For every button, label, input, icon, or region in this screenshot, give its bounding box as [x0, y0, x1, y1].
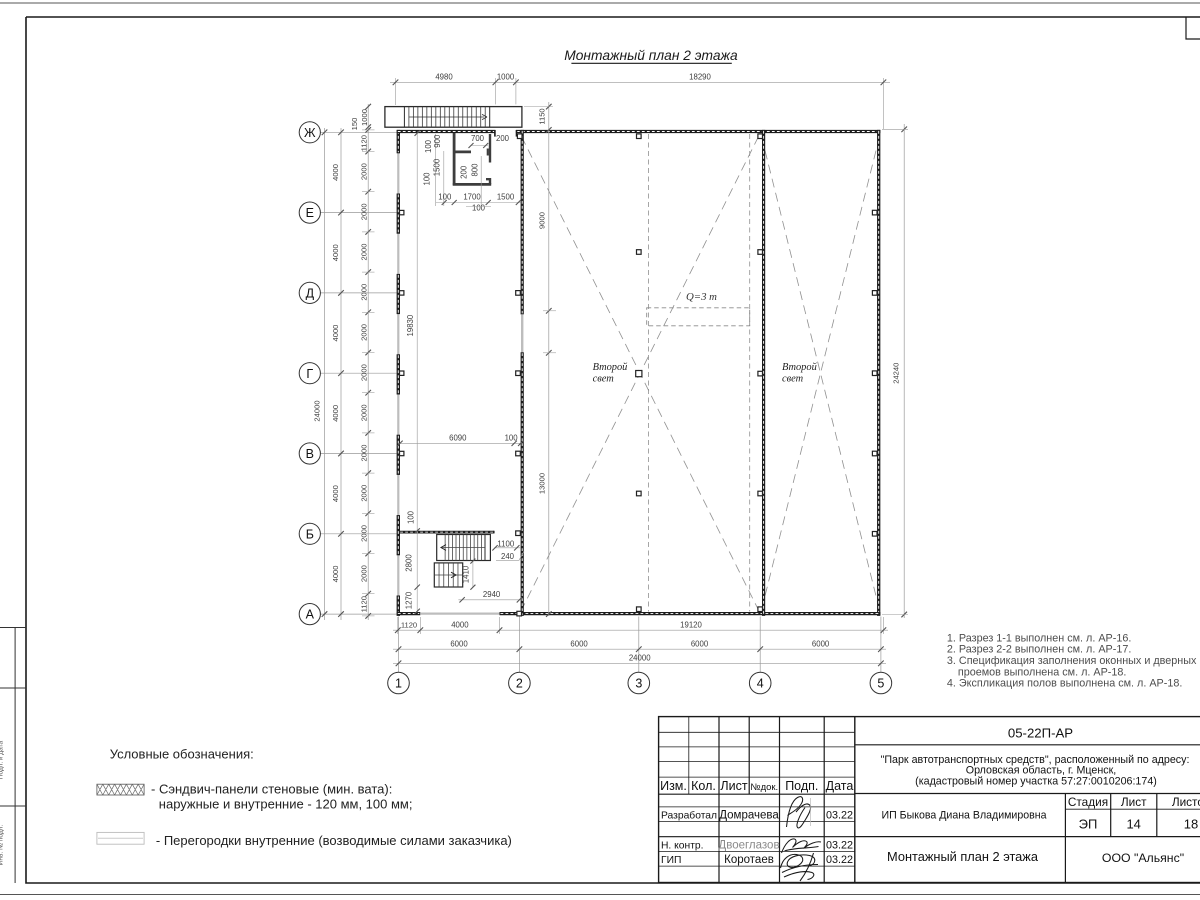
svg-text:24240: 24240 — [892, 363, 901, 384]
svg-text:4: 4 — [757, 677, 764, 691]
svg-text:13000: 13000 — [538, 473, 547, 494]
svg-text:Лист: Лист — [1121, 795, 1147, 809]
svg-text:1. Разрез 1-1 выполнен см. л.: 1. Разрез 1-1 выполнен см. л. АР-16. — [947, 632, 1131, 644]
svg-text:1000: 1000 — [497, 72, 515, 81]
svg-text:Изм.: Изм. — [660, 779, 687, 793]
svg-text:2000: 2000 — [359, 244, 368, 261]
svg-text:В: В — [306, 447, 314, 461]
svg-text:Условные обозначения:: Условные обозначения: — [110, 747, 254, 762]
svg-text:100: 100 — [422, 172, 431, 186]
svg-text:Коротаев: Коротаев — [724, 854, 774, 866]
svg-text:1120: 1120 — [401, 620, 417, 629]
svg-text:19830: 19830 — [406, 314, 415, 336]
svg-text:800: 800 — [471, 163, 480, 177]
svg-text:(кадастровый номер участка 57:: (кадастровый номер участка 57:27:0010206… — [915, 775, 1157, 787]
svg-text:4000: 4000 — [331, 244, 340, 261]
svg-text:100: 100 — [505, 433, 519, 442]
svg-text:6000: 6000 — [691, 639, 709, 648]
svg-text:Кол.: Кол. — [691, 779, 716, 793]
svg-text:2000: 2000 — [359, 404, 368, 421]
svg-text:Второй: Второй — [782, 362, 818, 373]
svg-text:Монтажный план 2 этажа: Монтажный план 2 этажа — [564, 48, 738, 63]
svg-text:100: 100 — [424, 139, 433, 153]
svg-text:Б: Б — [306, 527, 314, 541]
svg-text:2800: 2800 — [405, 554, 414, 572]
svg-text:ГИП: ГИП — [661, 855, 681, 866]
svg-text:- Перегородки внутренние (возв: - Перегородки внутренние (возводимые сил… — [156, 833, 512, 848]
svg-text:№док.: №док. — [750, 782, 778, 793]
svg-text:1270: 1270 — [405, 591, 414, 609]
svg-text:2: 2 — [516, 677, 523, 691]
svg-text:Е: Е — [306, 206, 314, 220]
svg-text:Q=3 т: Q=3 т — [686, 291, 717, 303]
svg-text:6000: 6000 — [450, 639, 468, 648]
svg-text:100: 100 — [472, 204, 486, 213]
svg-text:1000: 1000 — [360, 109, 369, 126]
svg-text:4000: 4000 — [331, 164, 340, 181]
svg-text:Ж: Ж — [304, 126, 316, 140]
svg-text:19120: 19120 — [680, 620, 702, 629]
svg-text:24000: 24000 — [629, 654, 651, 663]
svg-text:- Сэндвич-панели стеновые (мин: - Сэндвич-панели стеновые (мин. вата): — [151, 782, 392, 797]
svg-text:2000: 2000 — [359, 525, 368, 542]
svg-text:4000: 4000 — [451, 620, 469, 629]
svg-text:3. Спецификация заполнения око: 3. Спецификация заполнения оконных и две… — [947, 655, 1197, 667]
svg-text:18: 18 — [1184, 817, 1198, 832]
svg-text:1410: 1410 — [461, 565, 470, 583]
svg-text:700: 700 — [471, 134, 485, 143]
svg-text:ООО "Альянс": ООО "Альянс" — [1102, 851, 1184, 865]
svg-text:2000: 2000 — [359, 364, 368, 381]
svg-text:6090: 6090 — [449, 433, 467, 442]
svg-text:4000: 4000 — [331, 405, 340, 422]
svg-text:Двоеглазов: Двоеглазов — [718, 840, 779, 852]
svg-text:18290: 18290 — [689, 72, 711, 81]
svg-text:100: 100 — [407, 510, 416, 524]
svg-text:Разработал: Разработал — [661, 810, 717, 822]
svg-text:4000: 4000 — [331, 565, 340, 582]
svg-text:2000: 2000 — [359, 284, 368, 301]
svg-text:1120: 1120 — [359, 596, 368, 612]
svg-text:1500: 1500 — [497, 192, 515, 201]
svg-text:9000: 9000 — [538, 212, 547, 229]
svg-text:Подп.: Подп. — [785, 779, 818, 793]
svg-text:Листов: Листов — [1172, 795, 1200, 809]
svg-text:Н. контр.: Н. контр. — [661, 841, 704, 852]
svg-text:24000: 24000 — [313, 400, 322, 421]
svg-text:1700: 1700 — [463, 192, 481, 201]
svg-text:А: А — [306, 608, 315, 622]
svg-text:4980: 4980 — [435, 72, 453, 81]
svg-text:Второй: Второй — [593, 362, 629, 373]
svg-text:Инв. № подл.: Инв. № подл. — [0, 825, 5, 866]
svg-text:2000: 2000 — [359, 485, 368, 502]
svg-text:2000: 2000 — [359, 324, 368, 341]
svg-text:03.22: 03.22 — [826, 810, 853, 822]
svg-text:200: 200 — [496, 134, 510, 143]
svg-text:1150: 1150 — [538, 108, 547, 124]
svg-text:900: 900 — [433, 134, 442, 148]
svg-text:200: 200 — [459, 165, 468, 179]
svg-text:ЭП: ЭП — [1079, 817, 1098, 832]
svg-text:Стадия: Стадия — [1068, 795, 1108, 809]
svg-text:6000: 6000 — [812, 639, 830, 648]
svg-text:150: 150 — [350, 118, 359, 131]
svg-text:2. Разрез 2-2 выполнен см. л.: 2. Разрез 2-2 выполнен см. л. АР-17. — [947, 644, 1131, 656]
svg-text:проемов выполнена см. л. АР-18: проемов выполнена см. л. АР-18. — [958, 666, 1127, 678]
svg-text:2000: 2000 — [359, 203, 368, 220]
svg-text:4. Экспликация полов выполнена: 4. Экспликация полов выполнена см. л. АР… — [947, 678, 1182, 690]
svg-text:05-22П-АР: 05-22П-АР — [1008, 726, 1073, 741]
svg-text:2000: 2000 — [359, 163, 368, 180]
svg-text:6000: 6000 — [570, 639, 588, 648]
svg-text:Д: Д — [306, 287, 315, 301]
svg-text:03.22: 03.22 — [826, 854, 853, 866]
svg-text:Лист: Лист — [720, 779, 747, 793]
svg-text:Г: Г — [306, 367, 313, 381]
svg-text:1120: 1120 — [359, 135, 368, 151]
svg-text:свет: свет — [593, 374, 615, 385]
svg-text:Домрачева: Домрачева — [719, 810, 779, 822]
svg-text:1500: 1500 — [433, 158, 442, 176]
svg-text:1100: 1100 — [497, 539, 514, 548]
svg-text:наружные и внутренние - 120 мм: наружные и внутренние - 120 мм, 100 мм; — [159, 796, 413, 811]
svg-text:100: 100 — [438, 192, 452, 201]
svg-text:4000: 4000 — [331, 485, 340, 502]
svg-text:4000: 4000 — [331, 325, 340, 342]
svg-text:240: 240 — [501, 552, 515, 561]
svg-text:ИП Быкова Диана Владимировна: ИП Быкова Диана Владимировна — [882, 810, 1047, 822]
svg-text:2000: 2000 — [359, 445, 368, 462]
svg-text:5: 5 — [877, 677, 884, 691]
svg-text:2000: 2000 — [359, 565, 368, 582]
svg-text:Монтажный план 2 этажа: Монтажный план 2 этажа — [887, 849, 1039, 864]
svg-text:1: 1 — [395, 677, 402, 691]
svg-text:14: 14 — [1126, 817, 1140, 832]
svg-text:Дата: Дата — [826, 779, 854, 793]
svg-text:свет: свет — [782, 374, 804, 385]
svg-text:3: 3 — [635, 677, 642, 691]
svg-text:Подп. и дата: Подп. и дата — [0, 740, 5, 779]
svg-text:03.22: 03.22 — [826, 840, 853, 852]
svg-text:2940: 2940 — [483, 590, 501, 599]
